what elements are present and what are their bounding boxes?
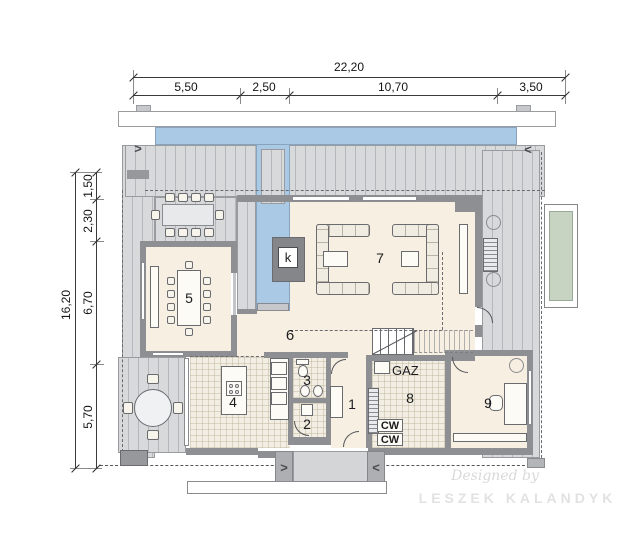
planter-green	[549, 211, 573, 301]
chair	[204, 228, 214, 237]
burner	[229, 384, 233, 388]
fireplace-label: k	[278, 247, 298, 268]
watermark-designed-by: Designed by	[430, 468, 560, 484]
chair	[147, 374, 159, 384]
outdoor-table	[162, 204, 214, 226]
sofa	[392, 282, 439, 295]
overhang-dashed-line	[145, 190, 545, 191]
sofa	[316, 282, 370, 295]
room-label-office: 9	[480, 395, 496, 411]
dim-line-left-total	[75, 172, 76, 468]
watermark-author: LESZEK KALANDYK	[405, 490, 630, 506]
chair	[178, 228, 188, 237]
gas-boiler	[374, 361, 390, 374]
chair	[165, 193, 175, 202]
window	[528, 370, 532, 425]
chair	[147, 430, 159, 440]
hot-water-tank: CW	[377, 419, 403, 432]
deck-joint	[127, 170, 149, 179]
dim-segment: 5,70	[81, 391, 95, 443]
dim-line-top-total	[133, 77, 565, 78]
wall	[140, 241, 237, 247]
room-label-dining: 5	[185, 290, 193, 306]
media-cabinet	[459, 224, 468, 294]
floor-plan: 22,20 5,50 2,50 10,70 3,50 16,20 1,50 2,…	[0, 0, 638, 556]
chair	[173, 402, 183, 414]
chair	[203, 316, 211, 324]
porch-arrow-icon: >	[278, 460, 290, 474]
deck-mid-strip	[237, 197, 256, 311]
appliance	[271, 392, 287, 405]
wall	[475, 195, 482, 307]
wall	[186, 448, 258, 455]
window	[152, 352, 184, 356]
plant	[486, 272, 501, 287]
overhang-dashed-line	[541, 152, 542, 458]
dim-line-top-segments	[133, 95, 565, 96]
desk	[504, 383, 527, 425]
deck-arrow-icon: <	[521, 142, 535, 156]
chair	[165, 228, 175, 237]
wall	[231, 241, 237, 273]
porch-recess	[293, 451, 368, 483]
chair	[167, 290, 175, 298]
stairs-upper-flight-dashed	[414, 330, 473, 353]
wall-block	[527, 458, 545, 468]
hot-water-tank: CW	[377, 433, 403, 446]
dim-segment: 2,30	[81, 195, 95, 247]
window	[292, 196, 350, 201]
wall	[288, 437, 331, 445]
chair	[215, 210, 224, 220]
chair	[204, 193, 214, 202]
deck-arrow-icon: >	[131, 141, 145, 155]
wall	[237, 195, 482, 202]
corner-block	[120, 450, 148, 466]
chair	[203, 303, 211, 311]
deck-bench	[483, 238, 498, 272]
chair	[123, 402, 133, 414]
chair	[203, 277, 211, 285]
chair	[191, 228, 201, 237]
sideboard	[150, 266, 159, 328]
chair	[167, 277, 175, 285]
wall	[475, 325, 482, 337]
wall	[231, 315, 237, 357]
window	[362, 196, 417, 201]
plant	[486, 215, 501, 230]
dim-line-left-segments	[96, 172, 97, 468]
coffee-table	[323, 251, 348, 267]
chair	[178, 193, 188, 202]
chair	[151, 210, 160, 220]
glass-wall	[184, 358, 189, 446]
gas-label: GAZ	[392, 363, 436, 377]
plant	[509, 358, 524, 373]
room-label-kitchen: 4	[225, 394, 241, 410]
ceiling-dashed-line	[290, 330, 442, 331]
dim-total-height: 16,20	[59, 279, 73, 331]
window	[141, 262, 145, 320]
dim-segment: 10,70	[363, 80, 423, 94]
wall	[291, 398, 328, 403]
appliance	[271, 377, 287, 390]
porch-arrow-icon: <	[370, 460, 382, 474]
dim-segment: 5,50	[156, 80, 216, 94]
wall	[237, 309, 257, 314]
chair	[167, 303, 175, 311]
ceiling-dashed-line	[190, 356, 264, 357]
chair	[185, 261, 193, 269]
room-label-open-area: 6	[281, 326, 299, 344]
water-channel-bridge	[257, 303, 289, 311]
water-strip	[155, 127, 517, 145]
room-label-hall: 1	[344, 396, 360, 412]
room-label-utility-hall: 2	[299, 416, 315, 432]
dim-segment: 2,50	[234, 80, 294, 94]
chair	[203, 290, 211, 298]
wall	[445, 356, 451, 448]
wardrobe	[330, 386, 343, 418]
side-table	[401, 251, 419, 267]
dim-total-width: 22,20	[299, 60, 399, 74]
dim-segment: 6,70	[81, 277, 95, 329]
round-table	[134, 389, 172, 427]
dining-table: 5	[177, 270, 201, 326]
room-label-wc: 3	[299, 372, 315, 388]
appliance	[271, 362, 287, 375]
room-label-technical: 8	[402, 390, 418, 406]
chair	[167, 316, 175, 324]
dim-segment: 3,50	[501, 80, 561, 94]
sliding-door	[233, 273, 236, 315]
burner	[235, 384, 239, 388]
washbasin	[301, 404, 313, 416]
chair	[191, 193, 201, 202]
wall	[368, 448, 533, 455]
ceiling-dashed-line	[442, 252, 443, 330]
chair	[185, 328, 193, 336]
entrance-step	[187, 481, 387, 494]
shelf	[453, 433, 527, 442]
room-label-living: 7	[370, 250, 390, 266]
roof-edge	[118, 111, 556, 127]
